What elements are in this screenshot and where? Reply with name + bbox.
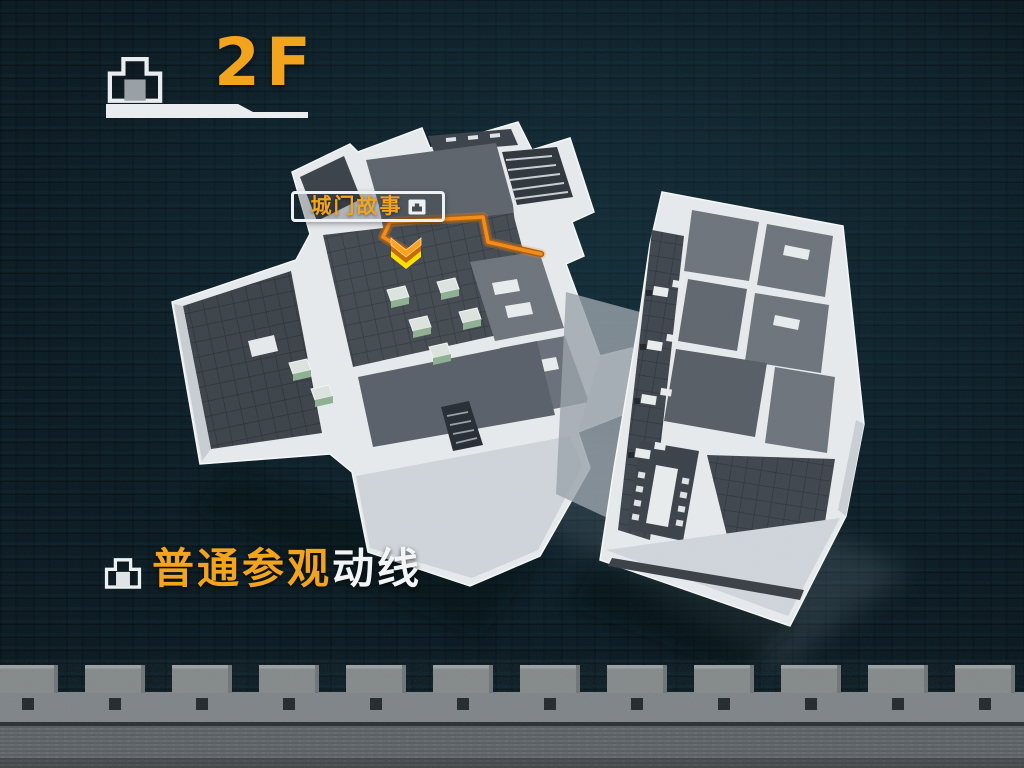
header-underline: [104, 102, 314, 120]
city-wall-battlement: [0, 660, 1024, 768]
route-callout[interactable]: 城门故事: [291, 191, 445, 222]
gate-icon: [104, 555, 142, 590]
gate-icon: [106, 52, 164, 105]
floor-label: 2F: [214, 30, 317, 96]
kiosk-screen: 2F 城门故事 普通参观 动线: [0, 0, 1024, 768]
legend-rest: 动线: [332, 548, 422, 590]
route-callout-label: 城门故事: [311, 196, 403, 217]
gate-icon: [408, 199, 426, 215]
legend-highlight: 普通参观: [152, 548, 332, 590]
route-legend: 普通参观 动线: [104, 548, 422, 590]
